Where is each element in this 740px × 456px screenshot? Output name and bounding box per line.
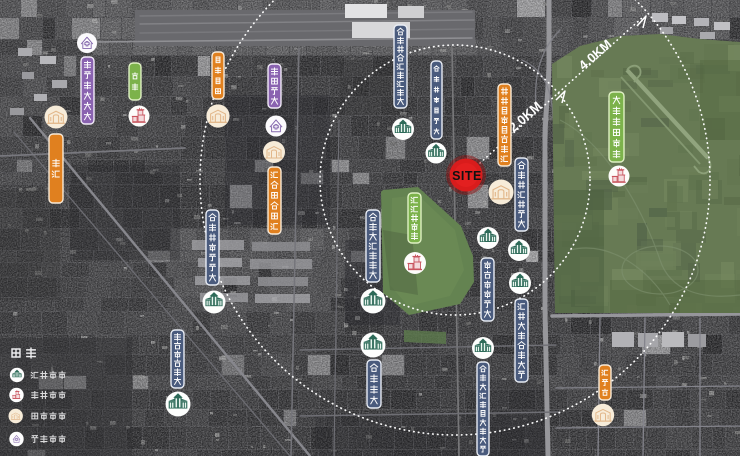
- svg-text:SITE: SITE: [452, 169, 482, 183]
